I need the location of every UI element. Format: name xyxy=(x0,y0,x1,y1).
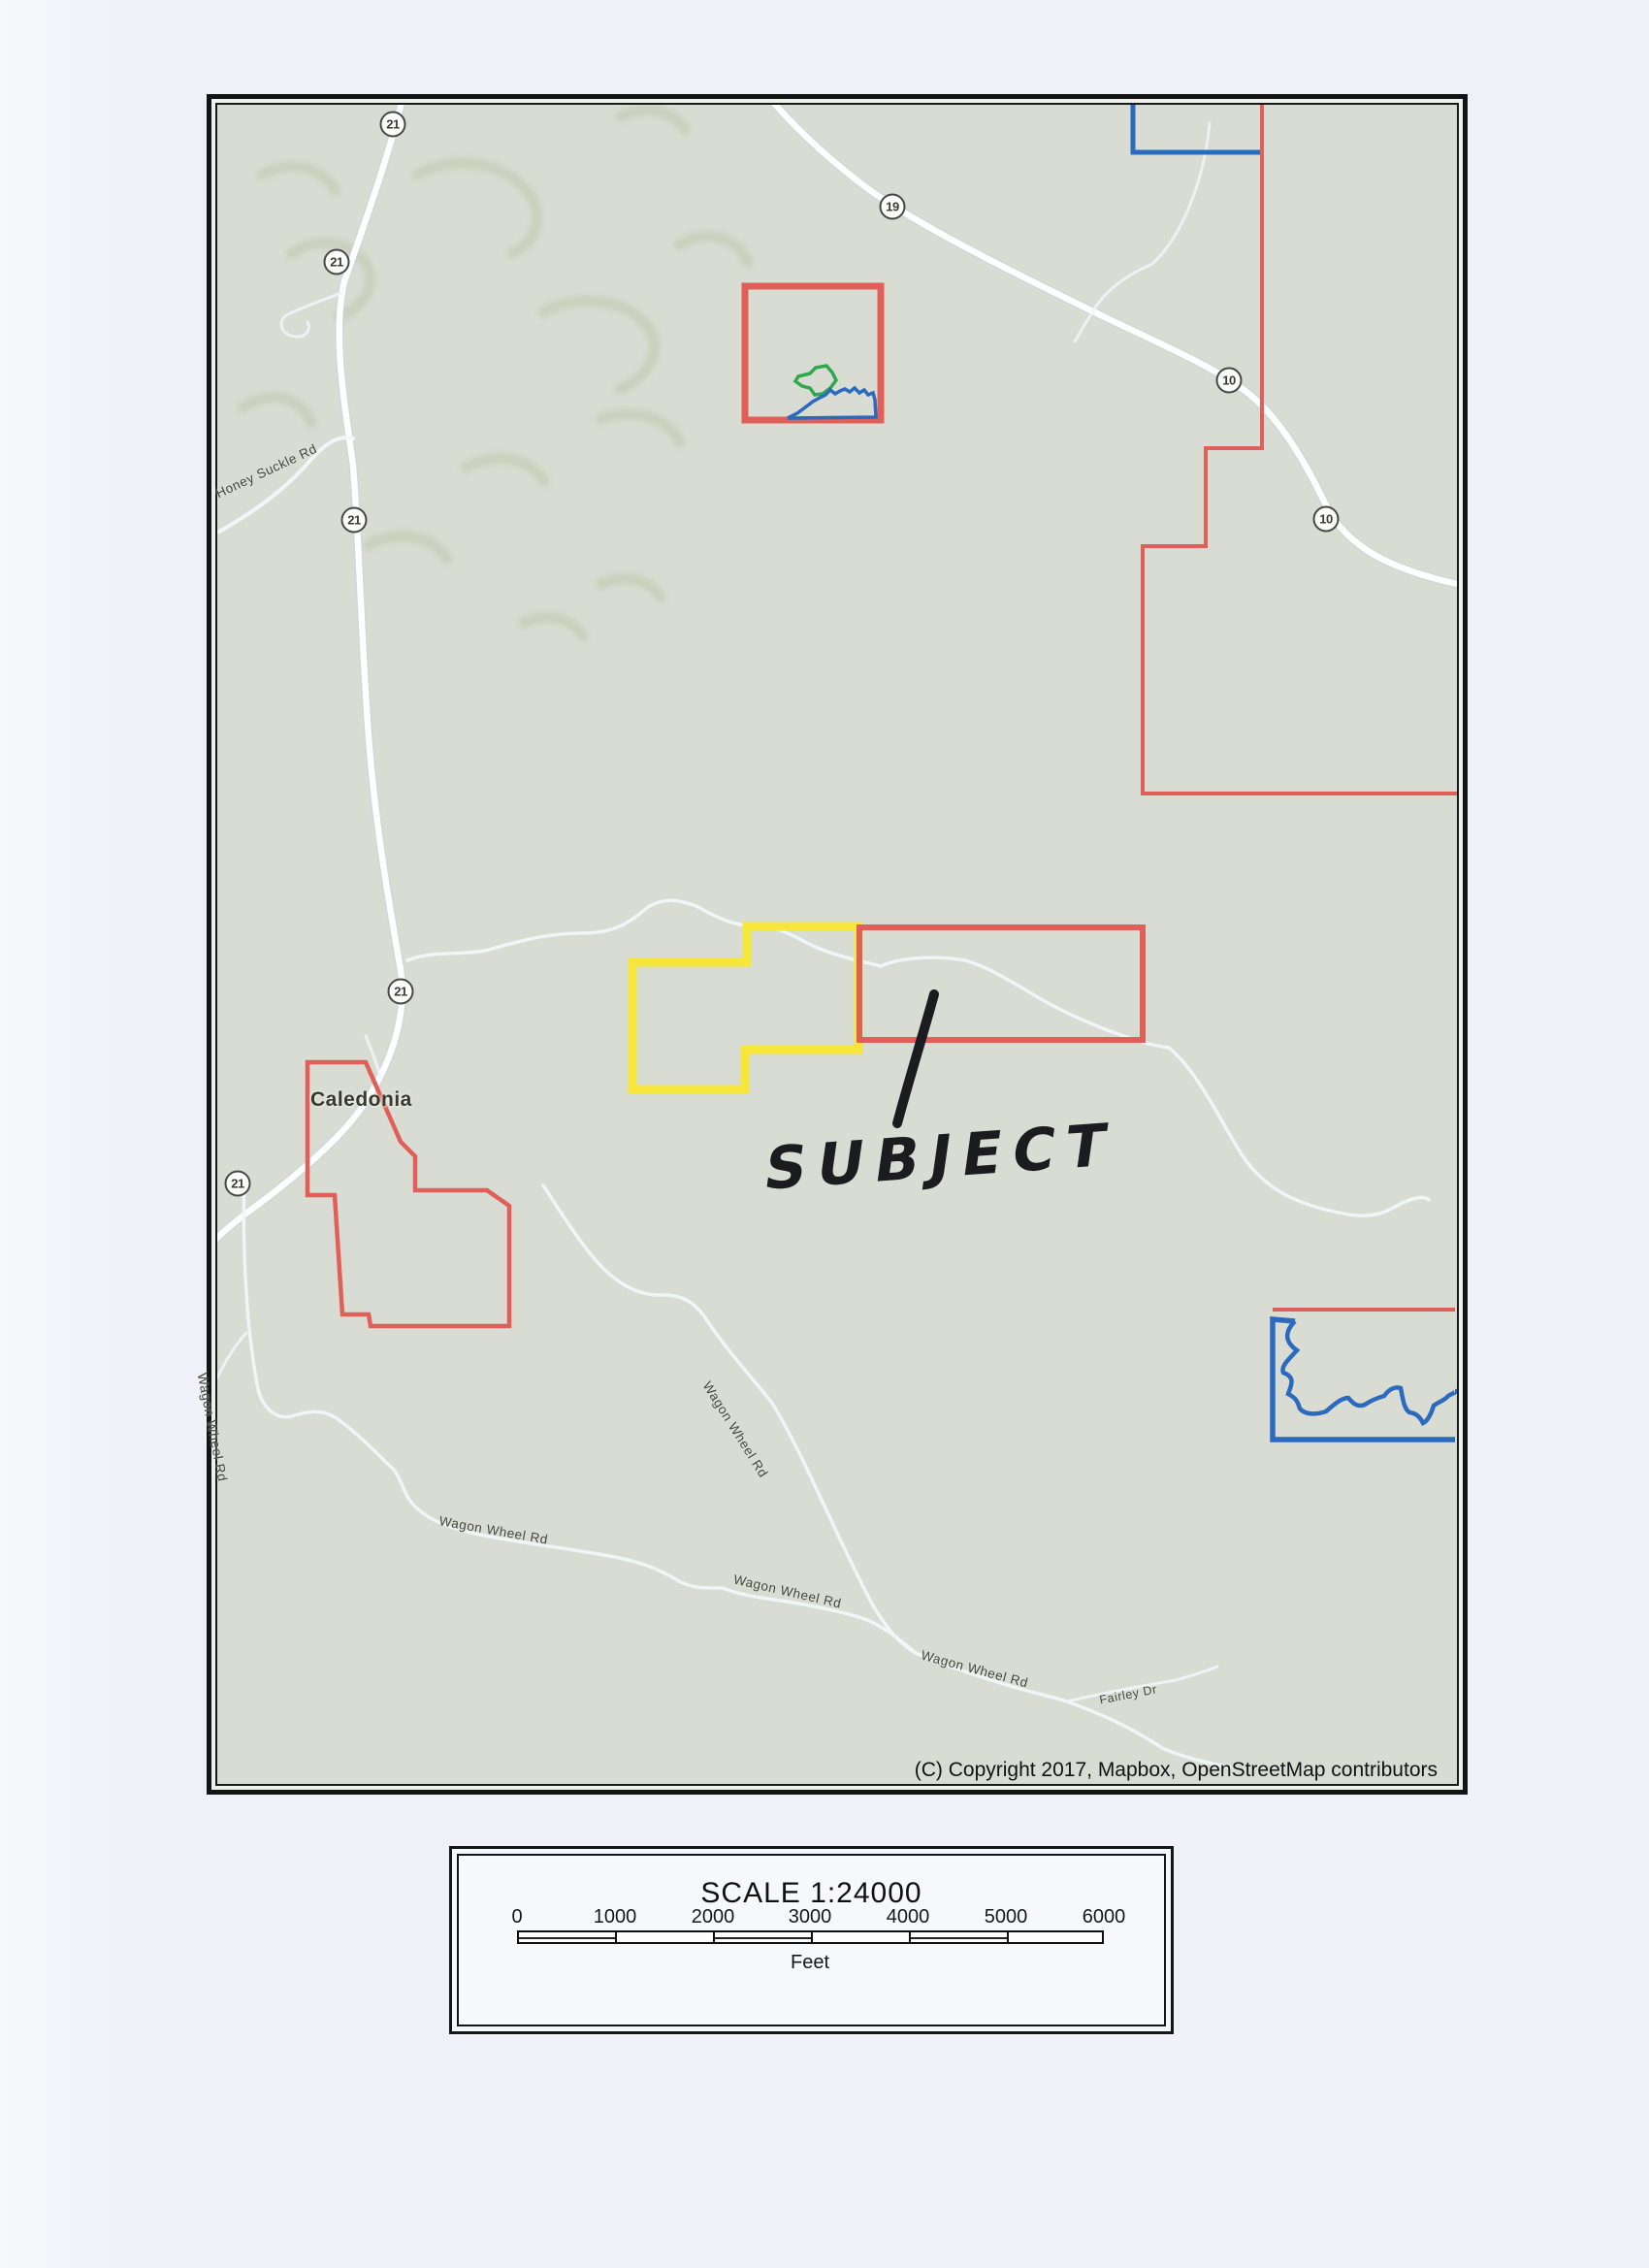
scale-tick-5000: 5000 xyxy=(985,1906,1028,1928)
parcel-blue-bracket-northeast xyxy=(1133,105,1262,152)
subject-pointer-slash xyxy=(897,994,934,1123)
scale-segment-midline xyxy=(715,1937,811,1939)
map-artwork xyxy=(217,105,1457,1784)
route-shield-10: 10 xyxy=(1216,368,1243,394)
route-shield-21: 21 xyxy=(341,507,368,534)
highway-19-10-road xyxy=(766,105,1457,584)
route-shield-10: 10 xyxy=(1313,506,1340,533)
route-shield-21: 21 xyxy=(225,1171,251,1197)
route-shield-21: 21 xyxy=(388,979,414,1005)
creek-blue-squiggle-southeast xyxy=(1282,1321,1456,1423)
route-shield-19: 19 xyxy=(880,194,906,220)
copyright-attribution: (C) Copyright 2017, Mapbox, OpenStreetMa… xyxy=(915,1759,1438,1782)
scanned-map-page: 21 21 21 21 21 19 10 10 Honey Suckle Rd … xyxy=(0,0,1649,2268)
scale-panel-inner-border: SCALE 1:24000 0 1000 2000 3000 4000 5000… xyxy=(457,1854,1166,2026)
scale-tick-6000: 6000 xyxy=(1083,1906,1126,1928)
parcel-red-subject xyxy=(859,927,1143,1040)
scale-panel: SCALE 1:24000 0 1000 2000 3000 4000 5000… xyxy=(449,1846,1174,2034)
scale-segment-midline xyxy=(519,1937,615,1939)
scale-bar-divider xyxy=(811,1932,813,1942)
scale-title: SCALE 1:24000 xyxy=(459,1877,1164,1910)
scale-bar xyxy=(517,1930,1104,1944)
town-label-caledonia: Caledonia xyxy=(310,1088,412,1112)
scale-unit-label: Feet xyxy=(791,1952,829,1974)
scale-tick-4000: 4000 xyxy=(887,1906,930,1928)
route-shield-21: 21 xyxy=(380,112,406,138)
wagon-wheel-main-road xyxy=(243,1176,1230,1767)
parcel-outlines xyxy=(307,105,1457,1440)
route-shield-21: 21 xyxy=(324,249,350,275)
scale-tick-0: 0 xyxy=(511,1906,522,1928)
map-canvas xyxy=(215,103,1459,1786)
scale-segment-midline xyxy=(911,1937,1007,1939)
roads xyxy=(217,105,1457,1767)
scale-bar-divider xyxy=(1007,1932,1009,1942)
scale-tick-3000: 3000 xyxy=(789,1906,832,1928)
scale-tick-2000: 2000 xyxy=(692,1906,735,1928)
road-near-blue-bracket xyxy=(1075,123,1210,341)
road-hook-near-21 xyxy=(281,293,341,337)
parcel-blue-squiggle-north xyxy=(788,388,876,418)
left-edge-spur-road xyxy=(217,1333,246,1377)
terrain-texture xyxy=(242,111,748,636)
scale-bar-divider xyxy=(615,1932,617,1942)
map-frame-border xyxy=(207,94,1468,1795)
scale-tick-1000: 1000 xyxy=(594,1906,637,1928)
